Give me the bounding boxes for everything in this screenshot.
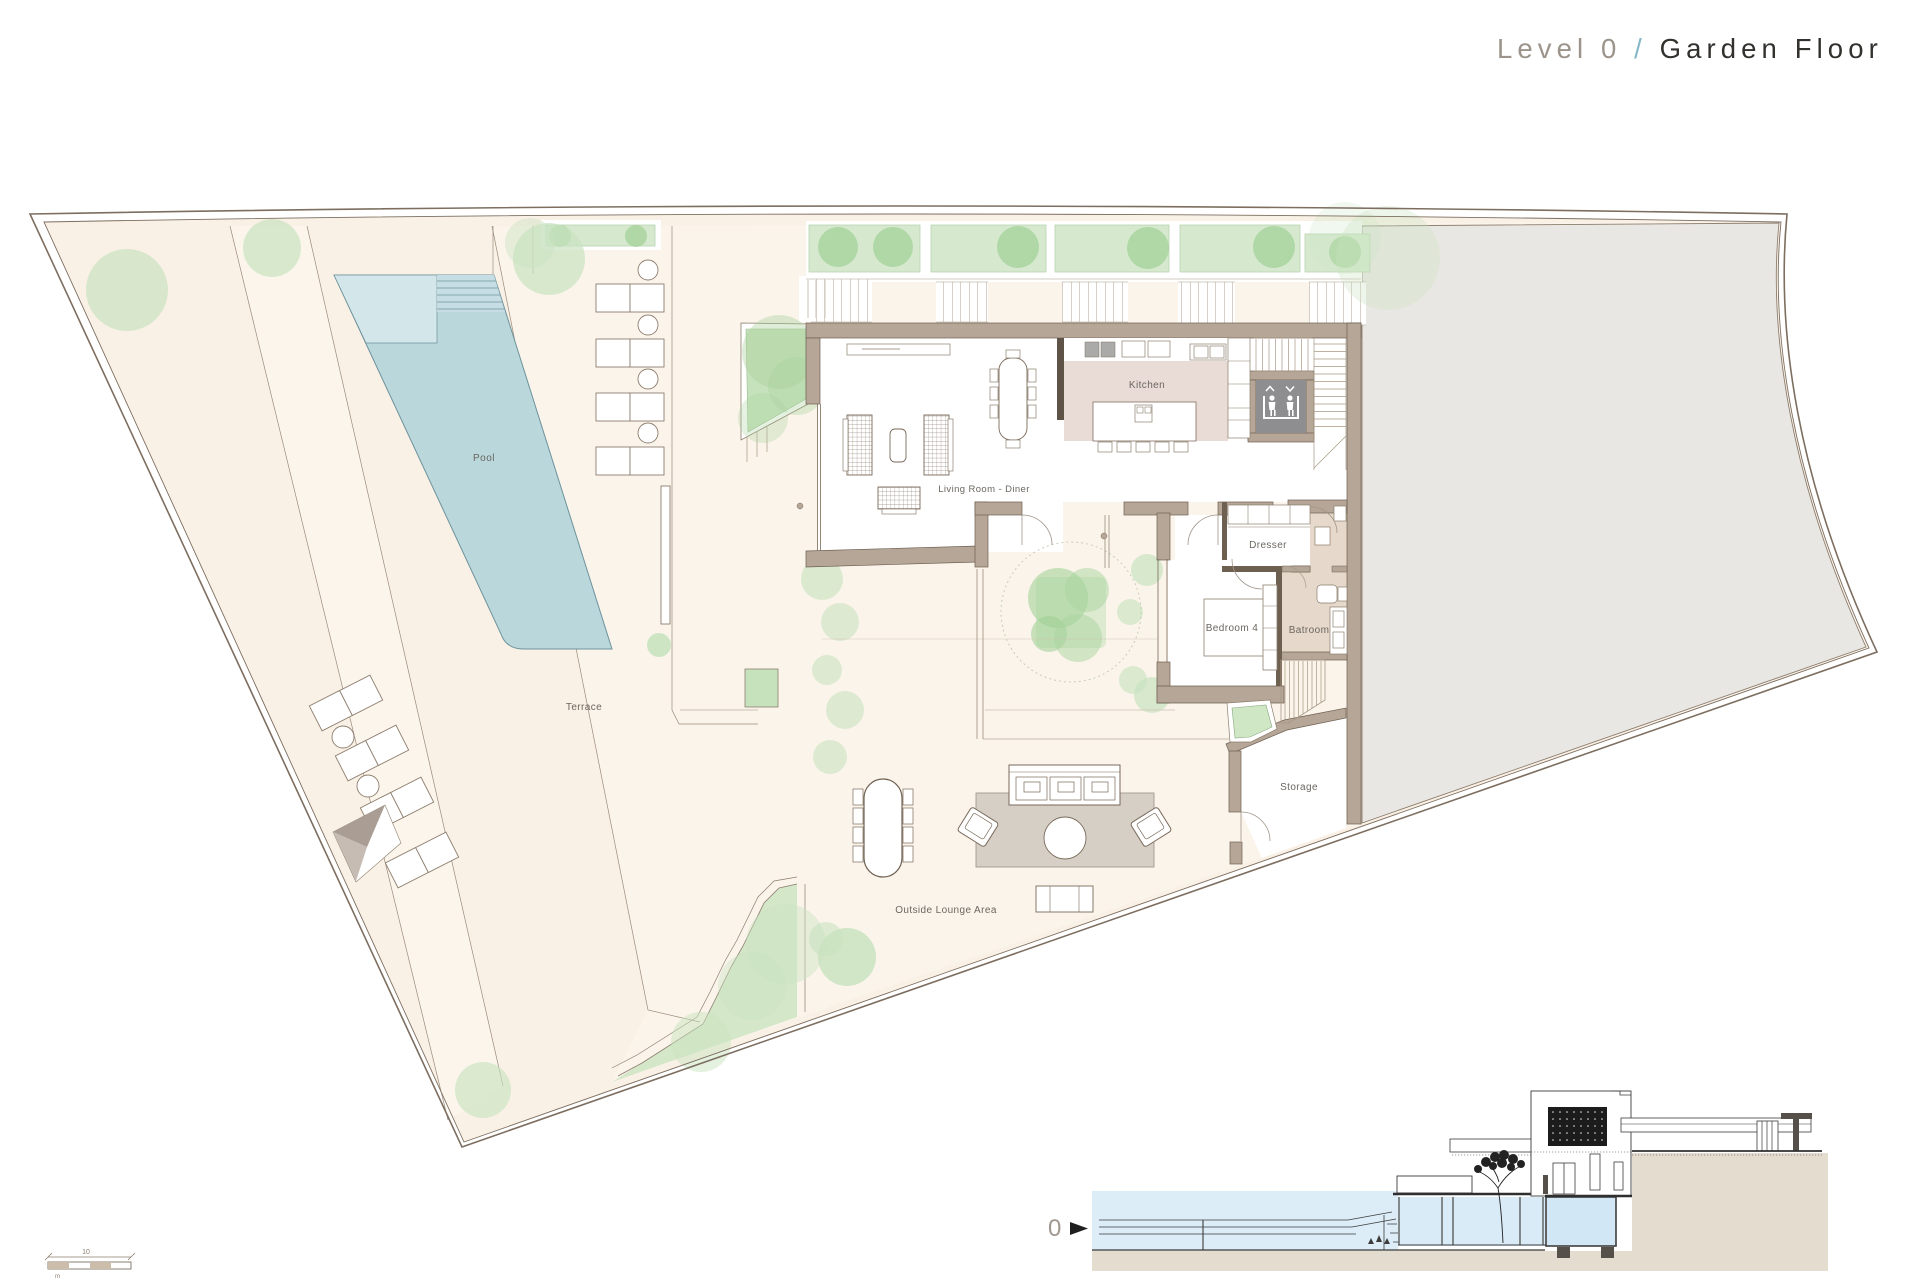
svg-text:Batroom: Batroom [1289,625,1330,636]
svg-text:Terrace: Terrace [566,702,602,713]
svg-text:Living Room - Diner: Living Room - Diner [938,484,1030,495]
svg-text:0: 0 [1048,1215,1061,1242]
svg-text:Bedroom 4: Bedroom 4 [1206,623,1259,634]
svg-text:10: 10 [82,1249,90,1256]
svg-text:Dresser: Dresser [1249,540,1287,551]
svg-text:m: m [55,1274,60,1280]
svg-text:Outside Lounge Area: Outside Lounge Area [895,905,997,916]
svg-text:Storage: Storage [1280,782,1318,793]
svg-text:Level 0 / Garden Floor: Level 0 / Garden Floor [1497,33,1883,64]
svg-text:Pool: Pool [473,453,495,464]
svg-text:Kitchen: Kitchen [1129,380,1165,391]
